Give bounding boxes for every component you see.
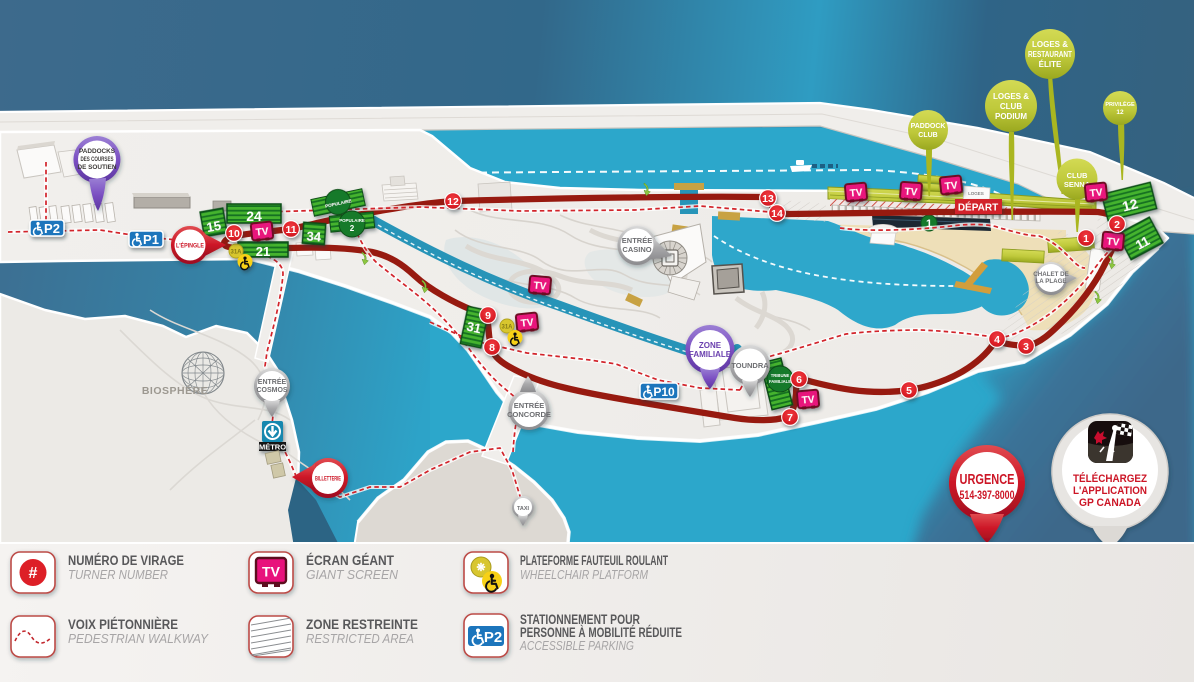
- svg-text:CHALET DE: CHALET DE: [1033, 271, 1068, 278]
- svg-text:DE SOUTIEN: DE SOUTIEN: [77, 164, 116, 171]
- svg-text:P2: P2: [44, 221, 60, 236]
- svg-text:31A: 31A: [230, 250, 242, 256]
- svg-text:ENTRÉE: ENTRÉE: [258, 377, 287, 386]
- svg-text:ZONE: ZONE: [699, 341, 722, 350]
- svg-text:PRIVILÈGE: PRIVILÈGE: [1105, 100, 1135, 108]
- svg-text:CLUB: CLUB: [918, 132, 937, 139]
- svg-text:ÉLITE: ÉLITE: [1039, 60, 1062, 69]
- svg-text:TV: TV: [262, 564, 281, 580]
- svg-text:13: 13: [762, 193, 774, 205]
- svg-text:TRIBUNE: TRIBUNE: [771, 373, 790, 378]
- svg-text:P10: P10: [653, 385, 675, 399]
- svg-text:2: 2: [1114, 219, 1120, 231]
- svg-text:3: 3: [1023, 341, 1029, 353]
- svg-text:PADDOCK: PADDOCK: [911, 123, 946, 130]
- svg-text:5: 5: [906, 385, 912, 397]
- svg-text:6: 6: [796, 374, 802, 386]
- svg-text:TÉLÉCHARGEZ: TÉLÉCHARGEZ: [1073, 472, 1147, 485]
- svg-text:514-397-8000: 514-397-8000: [960, 490, 1015, 502]
- svg-text:POPULAIRE: POPULAIRE: [339, 218, 365, 223]
- svg-text:TOUNDRA: TOUNDRA: [731, 361, 769, 370]
- svg-text:2: 2: [350, 224, 355, 233]
- svg-text:PADDOCKS: PADDOCKS: [79, 148, 116, 155]
- svg-text:31A: 31A: [501, 325, 513, 331]
- svg-text:NUMÉRO DE VIRAGE: NUMÉRO DE VIRAGE: [68, 553, 184, 568]
- svg-text:31: 31: [465, 319, 482, 337]
- svg-text:ENTRÉE: ENTRÉE: [514, 401, 544, 410]
- svg-text:24: 24: [246, 208, 262, 224]
- svg-text:URGENCE: URGENCE: [960, 472, 1015, 488]
- svg-text:WHEELCHAIR PLATFORM: WHEELCHAIR PLATFORM: [520, 568, 648, 582]
- svg-text:PEDESTRIAN WALKWAY: PEDESTRIAN WALKWAY: [68, 632, 210, 646]
- svg-text:8: 8: [489, 342, 495, 354]
- svg-text:34: 34: [306, 229, 322, 245]
- svg-text:#: #: [29, 565, 38, 582]
- svg-text:COSMOS: COSMOS: [256, 387, 287, 394]
- svg-text:LOGES &: LOGES &: [993, 92, 1029, 101]
- svg-text:VOIX PIÉTONNIÈRE: VOIX PIÉTONNIÈRE: [68, 617, 178, 632]
- svg-text:P1: P1: [143, 232, 159, 247]
- svg-text:CLUB: CLUB: [1067, 171, 1088, 180]
- svg-text:ZONE RESTREINTE: ZONE RESTREINTE: [306, 617, 418, 632]
- svg-text:12: 12: [1116, 109, 1124, 116]
- svg-text:9: 9: [485, 310, 491, 322]
- svg-text:ÉCRAN GÉANT: ÉCRAN GÉANT: [306, 553, 395, 568]
- svg-text:L'ÉPINGLE: L'ÉPINGLE: [176, 241, 204, 250]
- svg-text:DÉPART: DÉPART: [958, 201, 998, 214]
- svg-text:L'APPLICATION: L'APPLICATION: [1073, 485, 1147, 497]
- svg-text:10: 10: [228, 228, 240, 240]
- svg-text:LOGES &: LOGES &: [1032, 40, 1068, 49]
- svg-text:DES COURSES: DES COURSES: [81, 156, 115, 163]
- svg-text:PODIUM: PODIUM: [995, 112, 1027, 121]
- svg-text:FAMILIALE: FAMILIALE: [689, 350, 732, 359]
- svg-text:TURNER NUMBER: TURNER NUMBER: [68, 568, 168, 582]
- svg-text:GP CANADA: GP CANADA: [1079, 497, 1141, 509]
- svg-text:CONCORDE: CONCORDE: [507, 410, 551, 419]
- svg-text:❋: ❋: [476, 562, 485, 574]
- svg-text:PERSONNE À MOBILITÉ RÉDUITE: PERSONNE À MOBILITÉ RÉDUITE: [520, 625, 682, 640]
- svg-text:P2: P2: [484, 629, 502, 646]
- svg-text:ACCESSIBLE PARKING: ACCESSIBLE PARKING: [519, 639, 634, 653]
- svg-text:14: 14: [771, 208, 783, 220]
- svg-text:15: 15: [205, 218, 222, 235]
- svg-text:LA PLAGE: LA PLAGE: [1035, 278, 1066, 285]
- svg-text:FAMILIALE: FAMILIALE: [769, 379, 791, 384]
- svg-text:1: 1: [1083, 233, 1089, 245]
- svg-text:TAXI: TAXI: [517, 506, 530, 512]
- svg-text:CLUB: CLUB: [1000, 102, 1022, 111]
- svg-text:7: 7: [787, 412, 793, 424]
- svg-text:RESTRICTED AREA: RESTRICTED AREA: [306, 632, 414, 646]
- svg-text:11: 11: [285, 224, 296, 236]
- svg-text:BILLETTERIE: BILLETTERIE: [315, 477, 341, 483]
- svg-text:21: 21: [256, 244, 270, 259]
- svg-text:4: 4: [994, 334, 1000, 346]
- svg-text:12: 12: [447, 196, 459, 208]
- svg-text:PLATEFORME FAUTEUIL ROULANT: PLATEFORME FAUTEUIL ROULANT: [520, 553, 668, 568]
- svg-text:RESTAURANT: RESTAURANT: [1028, 50, 1072, 59]
- svg-text:CASINO: CASINO: [622, 245, 651, 254]
- svg-text:ENTRÉE: ENTRÉE: [622, 236, 652, 245]
- svg-text:LOGES: LOGES: [968, 191, 984, 196]
- svg-text:BIOSPHÈRE: BIOSPHÈRE: [142, 384, 208, 397]
- svg-text:GIANT SCREEN: GIANT SCREEN: [306, 568, 399, 582]
- svg-text:MÉTRO: MÉTRO: [259, 443, 286, 452]
